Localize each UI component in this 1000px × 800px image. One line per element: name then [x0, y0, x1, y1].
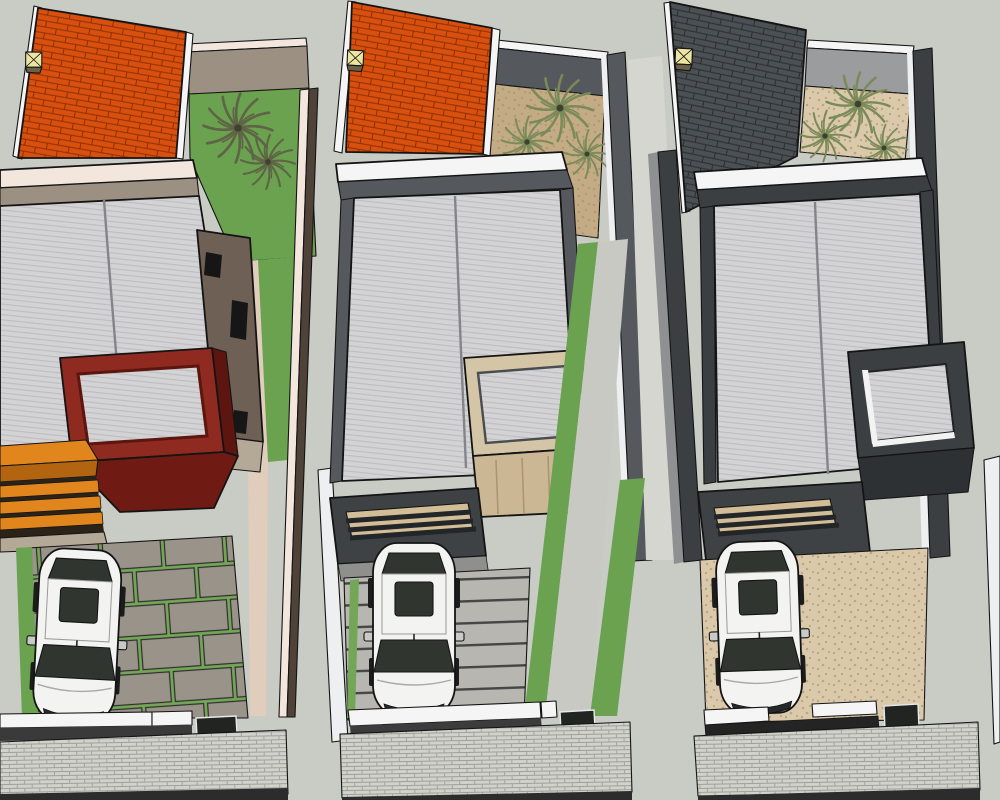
plot-right-frontyard: [700, 540, 928, 738]
rear-boundary-wall: [187, 46, 309, 94]
car-top-view: [23, 547, 132, 724]
plot-left-frontyard: [0, 536, 248, 741]
front-fence: [152, 711, 192, 726]
plot-left-tile-roof: [13, 6, 193, 159]
scene-canvas: [0, 0, 1000, 800]
charcoal-balcony: [848, 342, 974, 500]
sidewalk: [340, 722, 632, 798]
skylight: [672, 46, 695, 72]
sidewalk: [0, 730, 288, 799]
skylight: [344, 48, 366, 73]
balcony-opening: [866, 364, 954, 441]
orange-tile-roof: [346, 2, 492, 154]
front-fence: [812, 701, 877, 717]
plot-middle-tile-roof: [334, 1, 500, 156]
car-top-view: [364, 543, 464, 716]
skylight: [23, 50, 44, 74]
wood-pergola: [0, 440, 108, 552]
fence-post: [541, 701, 557, 718]
balcony-opening: [78, 366, 207, 444]
front-fence: [0, 712, 152, 728]
car-top-view: [706, 540, 812, 716]
window: [230, 300, 248, 340]
orange-tile-roof: [18, 8, 186, 158]
window: [204, 252, 222, 278]
front-walkway: [248, 462, 268, 716]
architectural-render: [0, 0, 1000, 800]
